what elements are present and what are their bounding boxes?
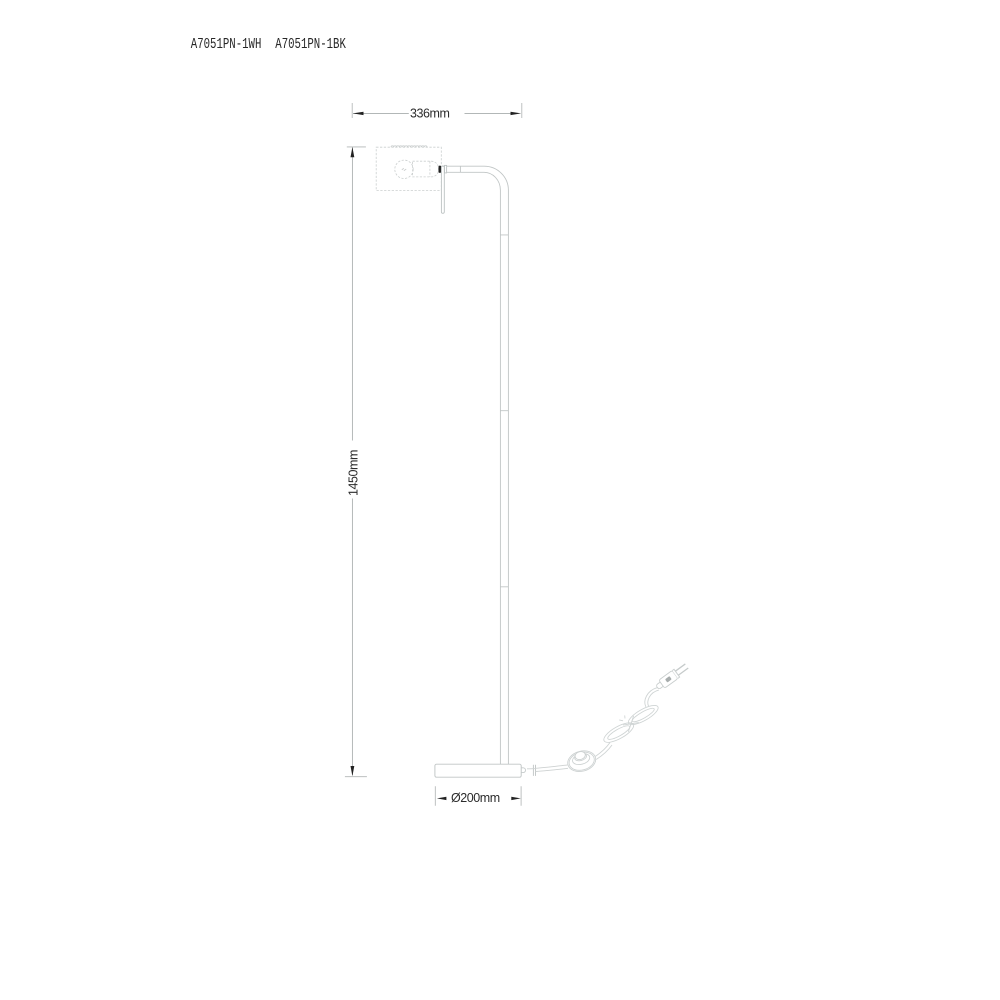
svg-text:A7051PN-1WH: A7051PN-1WH: [191, 36, 262, 53]
svg-text:Ø200mm: Ø200mm: [451, 791, 500, 805]
svg-text:1450mm: 1450mm: [347, 450, 361, 496]
svg-text:A7051PN-1BK: A7051PN-1BK: [275, 36, 346, 53]
svg-text:336mm: 336mm: [410, 106, 449, 120]
